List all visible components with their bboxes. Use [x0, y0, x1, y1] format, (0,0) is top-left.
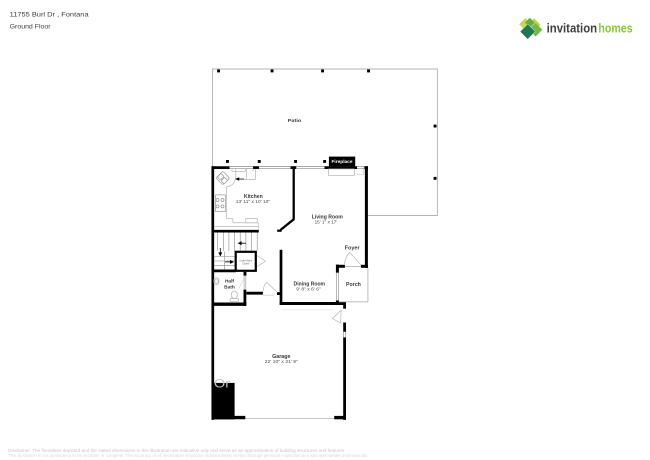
- svg-text:Half: Half: [225, 279, 234, 285]
- svg-text:15' 1" x 17': 15' 1" x 17': [315, 220, 338, 225]
- svg-text:homes: homes: [598, 22, 632, 36]
- svg-text:9' 8" x 6' 6": 9' 8" x 6' 6": [296, 286, 321, 291]
- svg-text:22' 10" x 21' 9": 22' 10" x 21' 9": [265, 359, 299, 364]
- svg-text:Fireplace: Fireplace: [332, 159, 354, 164]
- svg-text:Porch: Porch: [346, 282, 361, 288]
- svg-text:11755 Burl Dr , Fontana: 11755 Burl Dr , Fontana: [10, 12, 89, 19]
- svg-text:Disclaimer: The floorplans dep: Disclaimer: The floorplans depicted and …: [8, 448, 344, 453]
- svg-text:Closet: Closet: [242, 262, 249, 266]
- svg-text:Ground Floor: Ground Floor: [10, 23, 52, 30]
- svg-text:This illustration is not guara: This illustration is not guaranteed to b…: [8, 453, 367, 458]
- svg-text:Foyer: Foyer: [345, 246, 360, 252]
- svg-text:Or: Or: [214, 378, 230, 391]
- svg-text:13' 11" x 10' 10": 13' 11" x 10' 10": [236, 199, 271, 204]
- svg-text:invitation: invitation: [547, 22, 598, 36]
- svg-text:Patio: Patio: [288, 118, 302, 124]
- svg-text:Bath: Bath: [224, 285, 235, 291]
